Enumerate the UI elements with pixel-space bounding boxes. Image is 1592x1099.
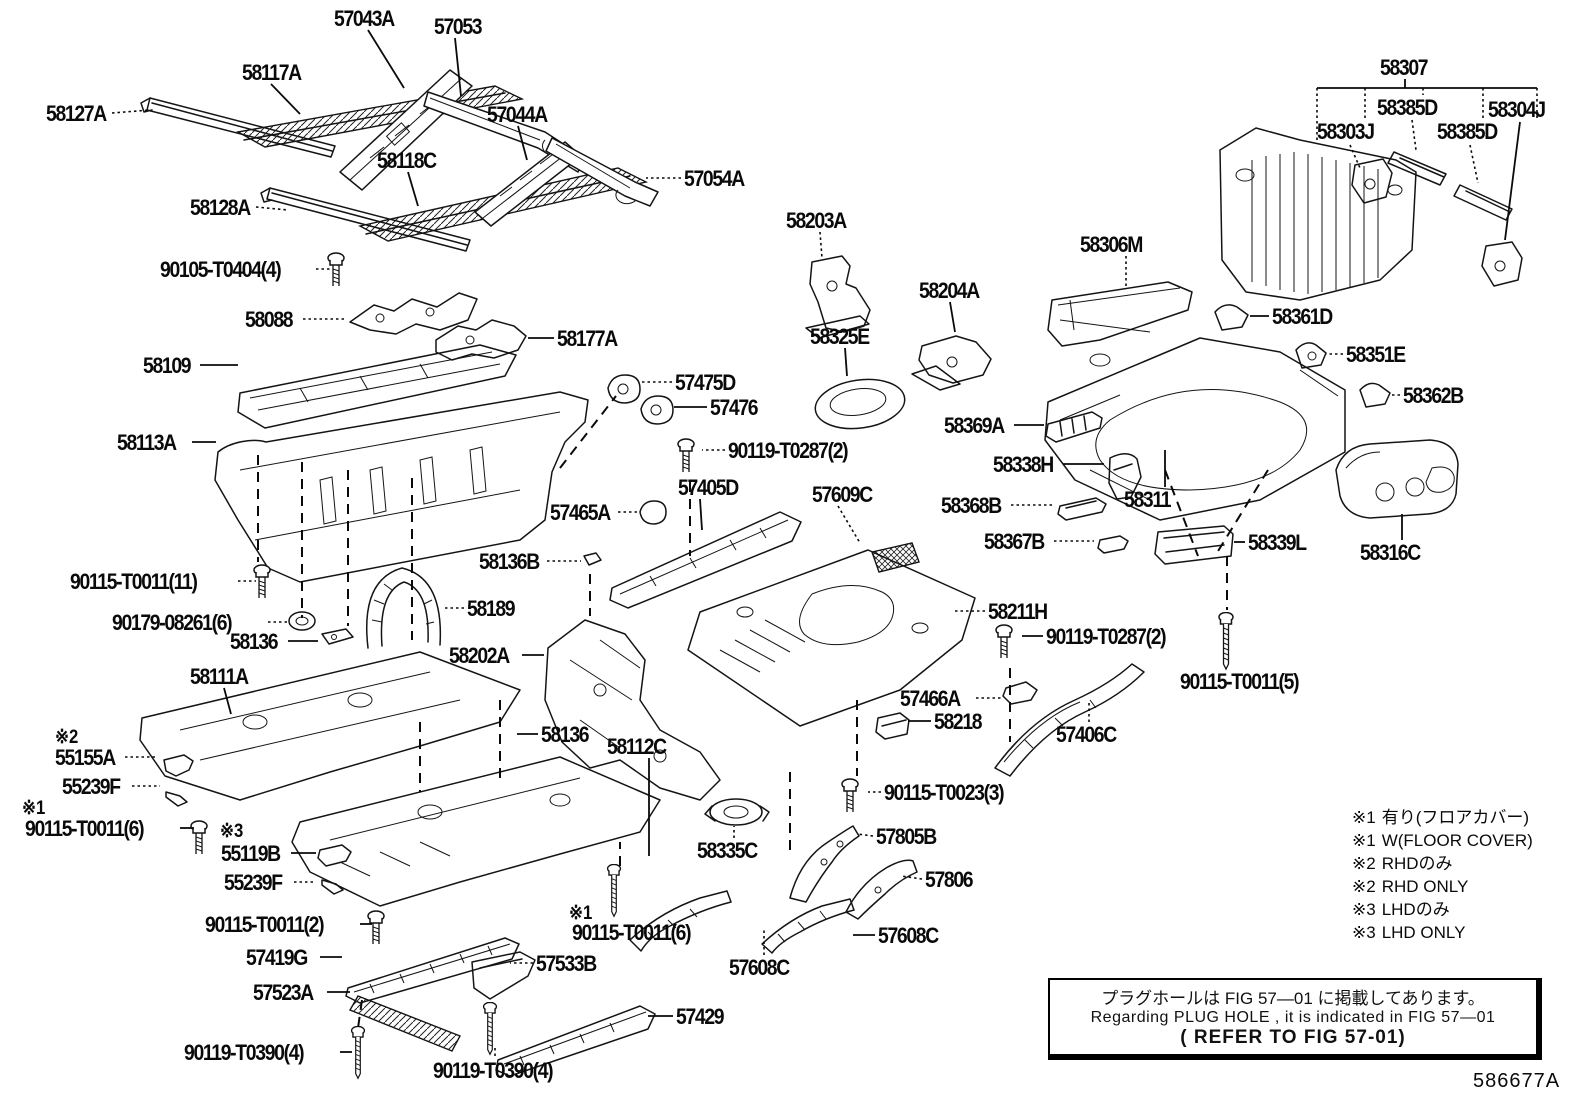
part-label-90115T00233-54: 90115-T0023(3)	[884, 782, 1003, 804]
part-label-57608C-52: 57608C	[878, 925, 938, 947]
part-label-58316C-63: 58316C	[1360, 542, 1420, 564]
part-label-55119B-38: 55119B	[221, 843, 280, 865]
figure-number: 586677A	[1473, 1070, 1560, 1093]
part-label-57475D-12: 57475D	[675, 372, 735, 394]
part-label-90115T00112-40: 90115-T0011(2)	[205, 914, 323, 936]
part-sketch-57805b	[790, 826, 859, 902]
leader-line-62	[820, 232, 822, 258]
part-sketch-58109	[238, 345, 516, 428]
legend-line-2: ※1W(FLOOR COVER)	[1352, 829, 1533, 852]
part-label-90119T02872-15: 90119-T0287(2)	[728, 440, 847, 462]
part-label-58303J-74: 58303J	[1317, 121, 1374, 143]
screw-90115-t0011-5-icon	[1219, 613, 1233, 670]
part-label-58136-55: 58136	[541, 724, 588, 746]
part-label-57466A-29: 57466A	[900, 688, 960, 710]
part-sketch-58304j	[1482, 242, 1522, 286]
part-label-58368B-60: 58368B	[941, 495, 1001, 517]
part-label-58088-9: 58088	[245, 309, 292, 331]
part-sketch-58204a	[912, 336, 991, 390]
part-sketch-58362b	[1360, 383, 1390, 407]
part-label-58202A-25: 58202A	[449, 645, 509, 667]
legend-line-3: ※2RHDのみ	[1352, 852, 1533, 875]
part-sketch-58361d	[1215, 305, 1248, 330]
part-label-58111A-24: 58111A	[190, 666, 248, 688]
part-label-58339L-62: 58339L	[1248, 532, 1306, 554]
screw-90119-t0390-1-icon	[352, 1026, 365, 1078]
bolt-90119-t0287-2-icon	[996, 625, 1012, 658]
part-sketch-58311-pan	[1045, 338, 1345, 520]
part-label-3-37: ※3	[220, 822, 243, 841]
part-label-58189-21: 58189	[467, 598, 514, 620]
part-label-57608C-53: 57608C	[729, 957, 789, 979]
part-label-57406C-31: 57406C	[1056, 724, 1116, 746]
leader-line-64	[845, 348, 847, 376]
part-sketch-58306m	[1048, 282, 1192, 346]
part-sketch-58189-arch	[367, 568, 441, 648]
leader-line-74	[1470, 145, 1478, 183]
part-label-58136B-19: 58136B	[479, 551, 539, 573]
part-sketch-55119b	[318, 845, 351, 866]
part-label-58367B-61: 58367B	[984, 531, 1044, 553]
construction-line-80	[560, 396, 616, 468]
part-sketch-57419g	[346, 938, 519, 1003]
part-label-58306M-67: 58306M	[1080, 234, 1142, 256]
part-label-57043A-0: 57043A	[334, 8, 394, 30]
part-sketch-57466a	[1003, 682, 1037, 704]
leader-line-0	[368, 30, 404, 88]
legend-line-5: ※3LHDのみ	[1352, 898, 1533, 921]
part-label-58118C-5: 58118C	[377, 150, 436, 172]
part-label-90119T03904-48: 90119-T0390(4)	[433, 1060, 552, 1082]
part-label-57523A-45: 57523A	[253, 982, 313, 1004]
part-label-58113A-14: 58113A	[117, 432, 176, 454]
part-sketch-57609c-pad	[872, 543, 919, 572]
plug-hole-note-box: プラグホールは FIG 57—01 に掲載してあります。 Regarding P…	[1048, 978, 1542, 1060]
part-label-90115T001111-20: 90115-T0011(11)	[70, 571, 197, 593]
part-label-90115T00115-28: 90115-T0011(5)	[1180, 671, 1298, 693]
note-line-japanese: プラグホールは FIG 57—01 に掲載してあります。	[1052, 984, 1534, 1009]
part-label-57533B-44: 57533B	[536, 953, 596, 975]
part-label-58351E-65: 58351E	[1346, 344, 1405, 366]
part-label-57609C-17: 57609C	[812, 484, 872, 506]
bolt-90115-t0023-icon	[842, 779, 858, 812]
part-sketch-58303j	[1352, 159, 1392, 203]
part-label-58307-71: 58307	[1380, 57, 1427, 79]
legend-line-1: ※1有り(フロアカバー)	[1352, 806, 1533, 829]
part-sketch-57406c	[995, 664, 1144, 776]
part-label-55155A-33: 55155A	[55, 747, 115, 769]
part-label-58136-23: 58136	[230, 631, 277, 653]
part-label-58204A-69: 58204A	[919, 280, 979, 302]
part-label-58335C-49: 58335C	[697, 840, 757, 862]
part-label-90115T00116-42: 90115-T0011(6)	[572, 922, 690, 944]
part-sketch-57608c-b	[762, 899, 854, 953]
part-sketch-58367b	[1098, 536, 1128, 553]
part-sketch-58369a	[1046, 412, 1102, 442]
note-line-refer: ( REFER TO FIG 57-01)	[1052, 1027, 1534, 1049]
leader-line-16	[700, 499, 702, 530]
part-sketch-58385d-2	[1454, 185, 1512, 220]
part-label-58117A-2: 58117A	[242, 62, 301, 84]
part-sketch-57476	[641, 396, 673, 424]
part-label-58218-30: 58218	[934, 711, 981, 733]
part-label-57806-51: 57806	[925, 869, 972, 891]
part-label-58369A-58: 58369A	[944, 415, 1004, 437]
part-sketch-58202a	[545, 620, 720, 800]
part-sketch-90179-grommet	[289, 612, 315, 630]
part-label-58128A-7: 58128A	[190, 197, 250, 219]
part-label-58338H-59: 58338H	[993, 454, 1053, 476]
leader-line-7	[256, 207, 288, 210]
part-sketch-57806	[846, 860, 917, 919]
part-sketch-58136-front	[322, 629, 353, 644]
part-label-58325E-70: 58325E	[810, 326, 869, 348]
leader-line-17	[838, 506, 860, 543]
part-sketch-58136b	[584, 553, 601, 565]
leader-line-73	[1412, 120, 1416, 150]
part-label-55239F-39: 55239F	[224, 872, 282, 894]
part-sketch-58088	[350, 293, 477, 334]
part-label-58127A-3: 58127A	[46, 103, 106, 125]
part-sketch-57405d	[610, 512, 801, 608]
parts-diagram-page: 57043A5705358117A58127A57044A58118C57054…	[0, 0, 1592, 1099]
part-label-57053-1: 57053	[434, 16, 481, 38]
leader-line-24	[224, 688, 231, 714]
legend-line-6: ※3LHD ONLY	[1352, 921, 1533, 944]
part-label-90105T04044-8: 90105-T0404(4)	[160, 259, 280, 281]
bolt-90119-t0287-1-icon	[678, 439, 694, 472]
part-sketch-55155a	[164, 755, 193, 776]
part-label-58203A-68: 58203A	[786, 210, 846, 232]
part-label-58385D-72: 58385D	[1377, 97, 1437, 119]
leader-line-2	[271, 84, 300, 114]
part-label-90119T02872-27: 90119-T0287(2)	[1046, 626, 1165, 648]
part-sketch-58335c	[705, 799, 769, 825]
part-label-58311-57: 58311	[1124, 489, 1170, 511]
leader-line-5	[408, 172, 418, 206]
part-sketch-backpanel-58307	[1220, 128, 1416, 300]
leader-lines	[112, 30, 1537, 1058]
bolt-90115-t0011-2-icon	[368, 911, 384, 944]
part-label-57429-47: 57429	[676, 1006, 723, 1028]
part-label-58304J-73: 58304J	[1488, 99, 1545, 121]
legend-line-4: ※2RHD ONLY	[1352, 875, 1533, 898]
part-label-57419G-43: 57419G	[246, 947, 307, 969]
part-sketch-58385d-1	[1388, 152, 1446, 185]
part-label-57044A-4: 57044A	[487, 104, 547, 126]
part-sketch-58112c-pan	[292, 757, 660, 906]
part-label-57476-13: 57476	[710, 397, 757, 419]
leader-line-75	[1505, 122, 1520, 240]
part-sketch-57465a	[640, 501, 666, 524]
part-label-58112C-56: 58112C	[607, 736, 666, 758]
part-label-57805B-50: 57805B	[876, 826, 936, 848]
screw-90115-t0011-6b-icon	[608, 864, 621, 916]
part-sketch-55239f-1	[166, 792, 187, 806]
part-label-58361D-66: 58361D	[1272, 306, 1332, 328]
bolt-90115-t0011-6a-icon	[191, 821, 207, 854]
part-label-58362B-64: 58362B	[1403, 385, 1463, 407]
screw-90119-t0390-2-icon	[484, 1002, 497, 1054]
part-label-57405D-16: 57405D	[678, 477, 738, 499]
part-label-58385D-75: 58385D	[1437, 121, 1497, 143]
part-sketch-58218	[876, 713, 909, 739]
legend-notes: ※1有り(フロアカバー) ※1W(FLOOR COVER) ※2RHDのみ ※2…	[1352, 806, 1533, 944]
part-label-58211H-26: 58211H	[988, 601, 1047, 623]
note-line-english: Regarding PLUG HOLE , it is indicated in…	[1052, 1009, 1534, 1027]
part-label-58109-11: 58109	[143, 355, 190, 377]
part-sketch-57523a	[350, 996, 460, 1051]
part-label-57465A-18: 57465A	[550, 502, 610, 524]
part-label-90119T03904-46: 90119-T0390(4)	[184, 1042, 303, 1064]
leader-line-63	[950, 302, 955, 332]
part-label-55239F-34: 55239F	[62, 776, 120, 798]
bolt-90105-t0404-icon	[328, 253, 344, 286]
part-sketch-58368b	[1058, 498, 1106, 520]
part-sketch-58325e	[812, 374, 908, 434]
part-sketch-58316c	[1336, 440, 1458, 518]
part-sketch-57533b	[472, 952, 535, 999]
part-label-57054A-6: 57054A	[684, 168, 744, 190]
part-label-90115T00116-36: 90115-T0011(6)	[25, 818, 143, 840]
part-label-58177A-10: 58177A	[557, 328, 617, 350]
part-label-90179082616-22: 90179-08261(6)	[112, 612, 231, 634]
bolt-90115-t0011-11-icon	[254, 565, 270, 598]
